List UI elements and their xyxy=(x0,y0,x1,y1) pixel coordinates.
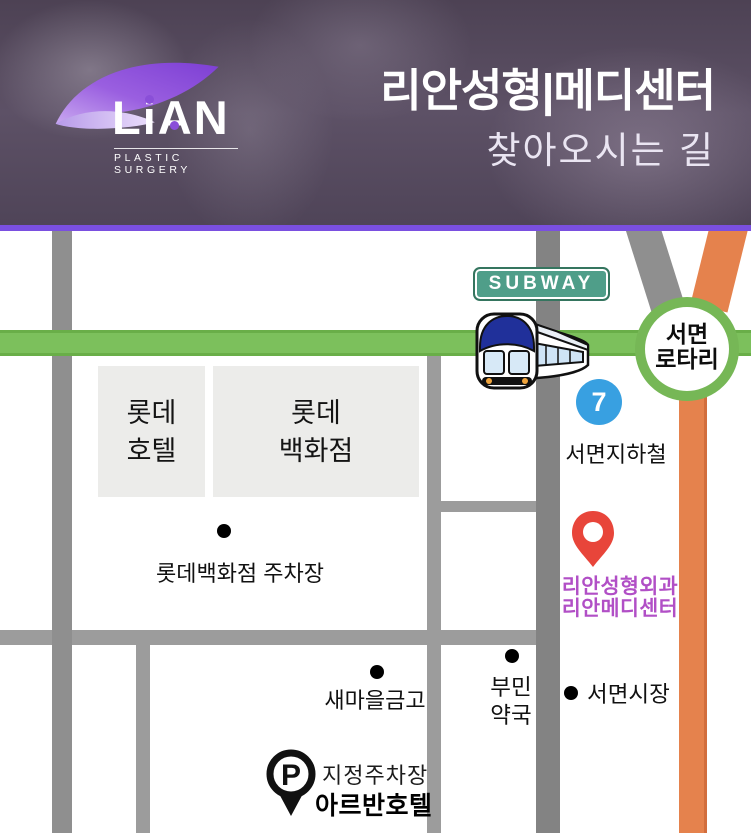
subway-sign: SUBWAY xyxy=(473,267,610,301)
subway-line7-badge: 7 xyxy=(576,379,622,425)
poi-label-saemaul: 새마을금고 xyxy=(275,683,475,715)
train-icon xyxy=(474,308,592,394)
logo-name-text: LiAN xyxy=(112,91,230,144)
arban-hotel-label: 아르반호텔 xyxy=(315,786,433,822)
lotte-hotel-line2: 호텔 xyxy=(127,432,177,470)
logo-tagline: PLASTIC SURGERY xyxy=(114,152,253,176)
poi-dot-seomyeon-market xyxy=(564,686,578,700)
rotary-line1: 서면 xyxy=(627,322,747,347)
direction-map-page: LiAN PLASTIC SURGERY 리안성형|메디센터 찾아오시는 길 xyxy=(0,0,751,833)
poi-dot-saemaul xyxy=(370,665,384,679)
station-label: 서면지하철 xyxy=(516,437,716,469)
parking-pin-letter: P xyxy=(281,759,301,792)
clinic-line2: 리안메디센터 xyxy=(540,598,700,620)
bumin-line2: 약국 xyxy=(461,702,561,730)
page-title: 리안성형|메디센터 xyxy=(380,54,715,119)
location-pin-icon xyxy=(571,510,615,568)
rotary-label: 서면 로타리 xyxy=(627,322,747,372)
lotte-hotel-building: 롯데 호텔 xyxy=(98,366,205,497)
poi-label-bumin-pharmacy: 부민 약국 xyxy=(461,674,561,729)
lotte-dept-line1: 롯데 xyxy=(291,394,341,432)
logo-i-dot xyxy=(145,95,154,104)
badge-number: 7 xyxy=(591,387,606,418)
poi-label-lotte-parking: 롯데백화점 주차장 xyxy=(130,556,350,588)
clinic-line1: 리안성형외과 xyxy=(540,576,700,598)
location-map: SUBWAY 서면 로타리 7 서면지하철 롯데 호텔 xyxy=(0,231,751,833)
lotte-dept-line2: 백화점 xyxy=(279,432,354,470)
logo-a-dot xyxy=(170,121,179,130)
poi-dot-bumin-pharmacy xyxy=(505,649,519,663)
rotary-line2: 로타리 xyxy=(627,347,747,372)
lotte-department-store-building: 롯데 백화점 xyxy=(213,366,419,497)
header-banner: LiAN PLASTIC SURGERY 리안성형|메디센터 찾아오시는 길 xyxy=(0,0,751,225)
clinic-name-label: 리안성형외과 리안메디센터 xyxy=(540,576,700,620)
lotte-hotel-line1: 롯데 xyxy=(127,394,177,432)
poi-seomyeon-market: 서면시장 xyxy=(564,677,670,709)
subway-sign-label: SUBWAY xyxy=(489,273,595,295)
lian-logo: LiAN PLASTIC SURGERY xyxy=(38,44,253,169)
logo-divider-line xyxy=(114,148,238,149)
page-subtitle: 찾아오시는 길 xyxy=(486,120,715,174)
poi-label-seomyeon-market: 서면시장 xyxy=(587,677,670,709)
bumin-line1: 부민 xyxy=(461,674,561,702)
logo-wordmark: LiAN xyxy=(112,92,252,144)
poi-dot-lotte-parking xyxy=(217,524,231,538)
parking-pin-icon: P xyxy=(264,748,318,818)
